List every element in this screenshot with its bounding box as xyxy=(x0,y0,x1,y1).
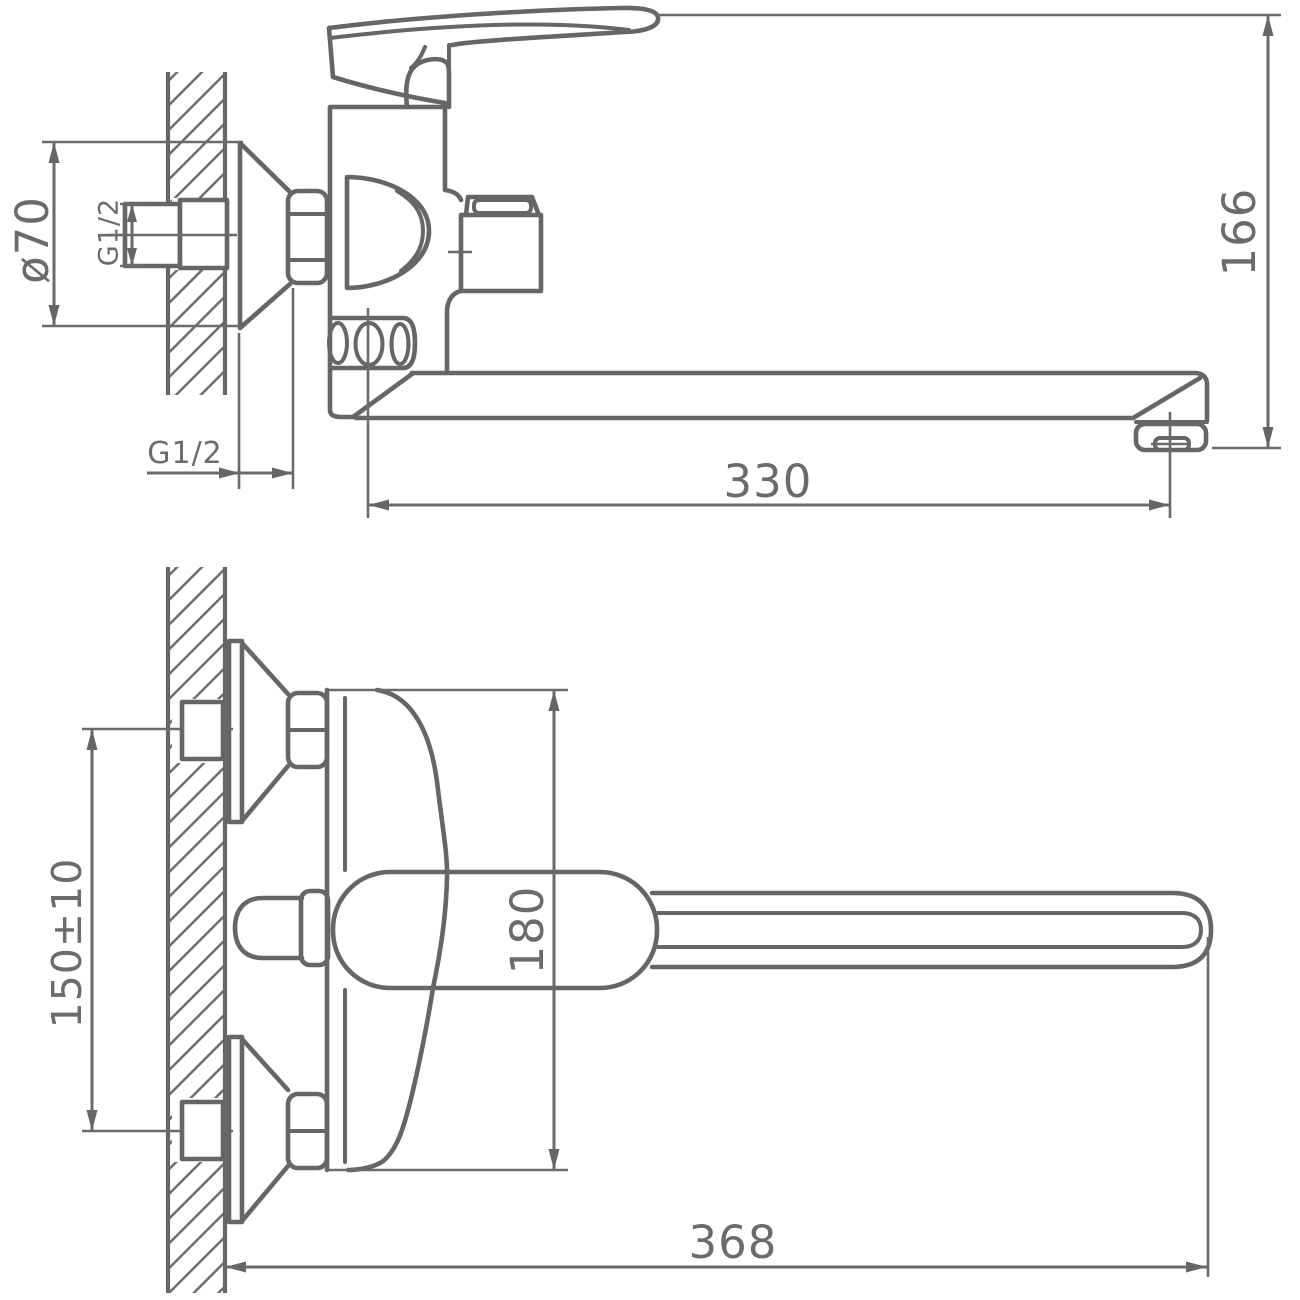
arrow-left-icon xyxy=(225,1262,246,1273)
arrow-right-icon xyxy=(1186,1262,1207,1273)
dim-overall-reach-label: 368 xyxy=(689,1216,778,1269)
arrow-up-icon xyxy=(1263,15,1274,36)
escutcheon-cone xyxy=(242,643,288,694)
arrow-right-icon xyxy=(272,468,293,479)
arrow-up-icon xyxy=(49,142,60,163)
dim-supply-centers: 150±10 xyxy=(43,729,98,1131)
dim-body-height: 180 xyxy=(327,690,568,1170)
spout-tip-chamfer xyxy=(1133,378,1200,418)
escutcheon-cone xyxy=(242,1166,288,1221)
flange-cone-bottom xyxy=(240,284,290,328)
body-plate xyxy=(235,690,447,1170)
spout-root-edge xyxy=(353,374,412,417)
cartridge-cover xyxy=(347,177,429,288)
dim-wall-connection-label: G1/2 xyxy=(147,436,223,471)
wall-socket xyxy=(182,702,223,759)
dim-overall-height-label: 166 xyxy=(1213,188,1266,277)
dim-flange-diameter-label: ø70 xyxy=(6,196,59,284)
escutcheon-base xyxy=(229,1037,242,1222)
dim-inlet-thread-label: G1/2 xyxy=(94,198,125,266)
lever-handle xyxy=(329,8,658,107)
escutcheon-base xyxy=(229,641,242,822)
dim-overall-reach: 368 xyxy=(225,937,1208,1277)
arrow-down-icon xyxy=(549,1149,560,1170)
spout-tube xyxy=(652,893,1211,967)
dim-spout-reach: 330 xyxy=(368,308,1170,518)
shower-outlet-block xyxy=(461,215,541,291)
cartridge-bonnet xyxy=(235,898,302,958)
flange-cone-top xyxy=(240,143,290,192)
body-lower-right xyxy=(447,291,461,372)
arrow-up-icon xyxy=(549,690,560,711)
body-left-edge xyxy=(330,108,353,417)
front-view: 150±10 180 368 xyxy=(43,567,1211,1293)
plate-right-edge xyxy=(348,690,447,1170)
side-view: ø70 G1/2 xyxy=(6,8,1281,518)
escutcheon-flange xyxy=(240,143,327,328)
arrow-down-icon xyxy=(1263,427,1274,448)
lever-handle-front xyxy=(333,872,657,988)
arrow-left-icon xyxy=(368,500,389,511)
port-ellipse xyxy=(392,324,409,364)
spout-front xyxy=(652,893,1211,967)
spout-tube-inner xyxy=(658,913,1201,947)
arrow-down-icon xyxy=(87,1110,98,1131)
arrow-down-icon xyxy=(49,305,60,326)
handle-rear-edge xyxy=(329,28,445,103)
wall-hatch-lower xyxy=(168,567,225,1293)
escutcheon-cone xyxy=(242,766,288,821)
faucet-body xyxy=(329,104,541,417)
arrow-right-icon xyxy=(219,468,240,479)
hex-nut xyxy=(288,191,327,283)
dim-supply-centers-label: 150±10 xyxy=(43,858,91,1029)
dim-body-height-label: 180 xyxy=(501,886,554,975)
spout-top-edge xyxy=(412,373,1207,420)
escutcheon-cone xyxy=(242,1039,288,1090)
body-right-edge xyxy=(445,104,461,200)
eccentric-fitting xyxy=(108,200,237,268)
arrow-right-icon xyxy=(1149,500,1170,511)
faucet-technical-drawing: ø70 G1/2 xyxy=(0,0,1300,1300)
wall-hatch-fill xyxy=(168,567,225,1293)
drawing-page: ø70 G1/2 xyxy=(0,0,1300,1300)
wall-socket xyxy=(182,1102,223,1159)
shower-outlet-thread xyxy=(474,200,531,213)
dim-spout-reach-label: 330 xyxy=(724,455,813,508)
arrow-up-icon xyxy=(87,729,98,750)
bonnet-collar xyxy=(301,891,328,965)
